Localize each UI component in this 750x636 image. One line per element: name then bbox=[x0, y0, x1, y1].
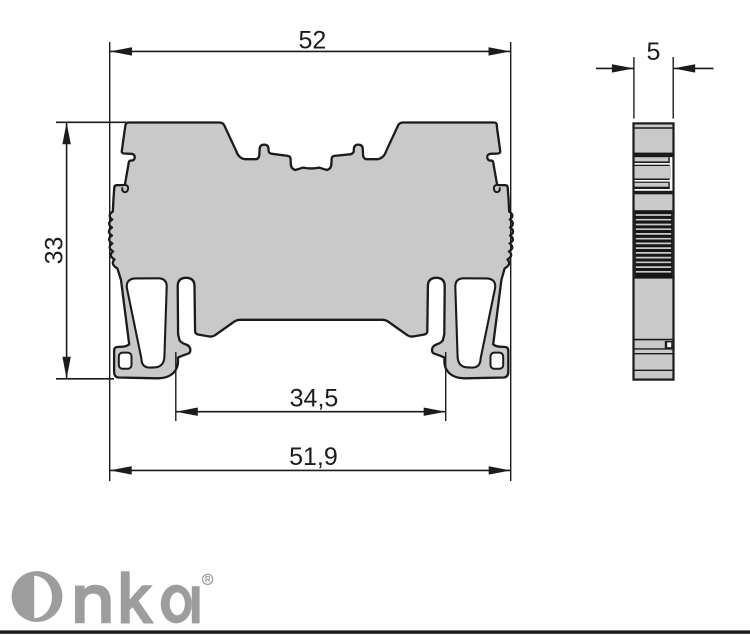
svg-text:5: 5 bbox=[647, 38, 661, 66]
svg-text:52: 52 bbox=[298, 27, 326, 55]
svg-text:51,9: 51,9 bbox=[289, 443, 338, 471]
svg-text:34,5: 34,5 bbox=[290, 385, 339, 413]
svg-text:33: 33 bbox=[41, 237, 69, 265]
